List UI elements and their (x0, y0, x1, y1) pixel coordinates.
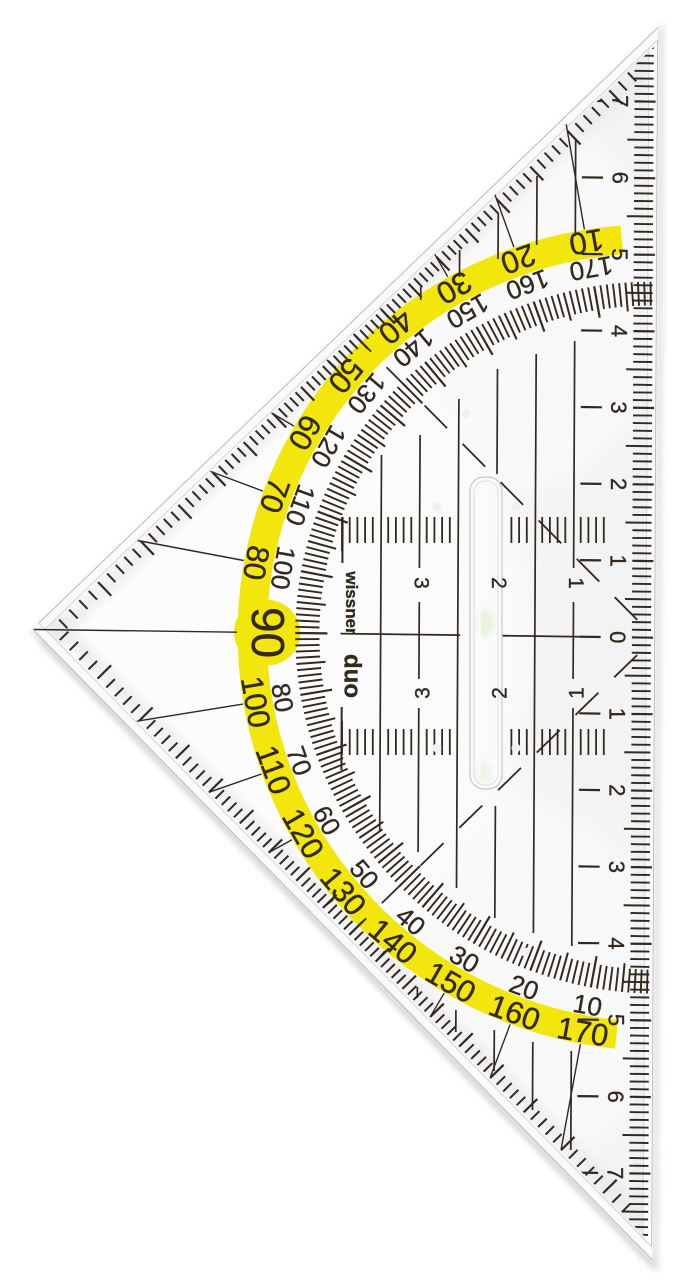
svg-text:2: 2 (606, 478, 631, 490)
svg-text:1: 1 (566, 687, 589, 699)
svg-text:4: 4 (604, 937, 629, 949)
svg-text:3: 3 (411, 687, 434, 699)
svg-text:5: 5 (603, 1014, 628, 1026)
svg-text:0: 0 (605, 631, 630, 643)
svg-text:wissner: wissner (342, 570, 361, 635)
svg-text:80: 80 (265, 681, 300, 715)
svg-text:7: 7 (608, 95, 633, 107)
svg-text:3: 3 (410, 577, 433, 589)
svg-text:6: 6 (607, 172, 632, 184)
svg-text:1: 1 (606, 554, 631, 566)
svg-text:6: 6 (603, 1090, 628, 1102)
svg-text:4: 4 (607, 325, 632, 337)
svg-text:1: 1 (605, 708, 630, 720)
svg-text:3: 3 (606, 401, 631, 413)
svg-text:2: 2 (604, 784, 629, 796)
svg-text:3: 3 (604, 861, 629, 873)
svg-text:2: 2 (487, 577, 510, 589)
svg-text:90: 90 (242, 607, 294, 658)
svg-text:2: 2 (489, 687, 512, 699)
svg-text:1: 1 (564, 577, 587, 589)
svg-text:10: 10 (571, 988, 605, 1023)
svg-text:duo: duo (339, 654, 366, 698)
svg-text:7: 7 (603, 1167, 628, 1179)
svg-text:5: 5 (607, 248, 632, 260)
